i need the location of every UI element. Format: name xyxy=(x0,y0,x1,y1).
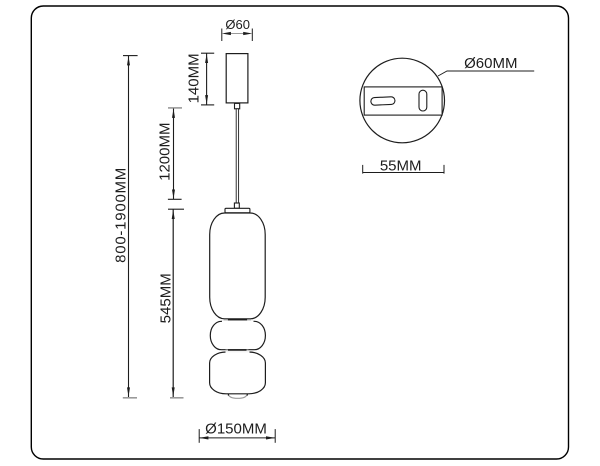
svg-text:1200MM: 1200MM xyxy=(157,123,174,181)
svg-text:55MM: 55MM xyxy=(380,157,422,174)
svg-text:800-1900MM: 800-1900MM xyxy=(113,167,130,263)
svg-text:Ø60MM: Ø60MM xyxy=(464,55,517,72)
svg-text:Ø60: Ø60 xyxy=(225,17,250,32)
svg-text:140MM: 140MM xyxy=(186,53,203,103)
svg-text:545MM: 545MM xyxy=(157,273,174,323)
svg-text:Ø150MM: Ø150MM xyxy=(205,421,267,438)
